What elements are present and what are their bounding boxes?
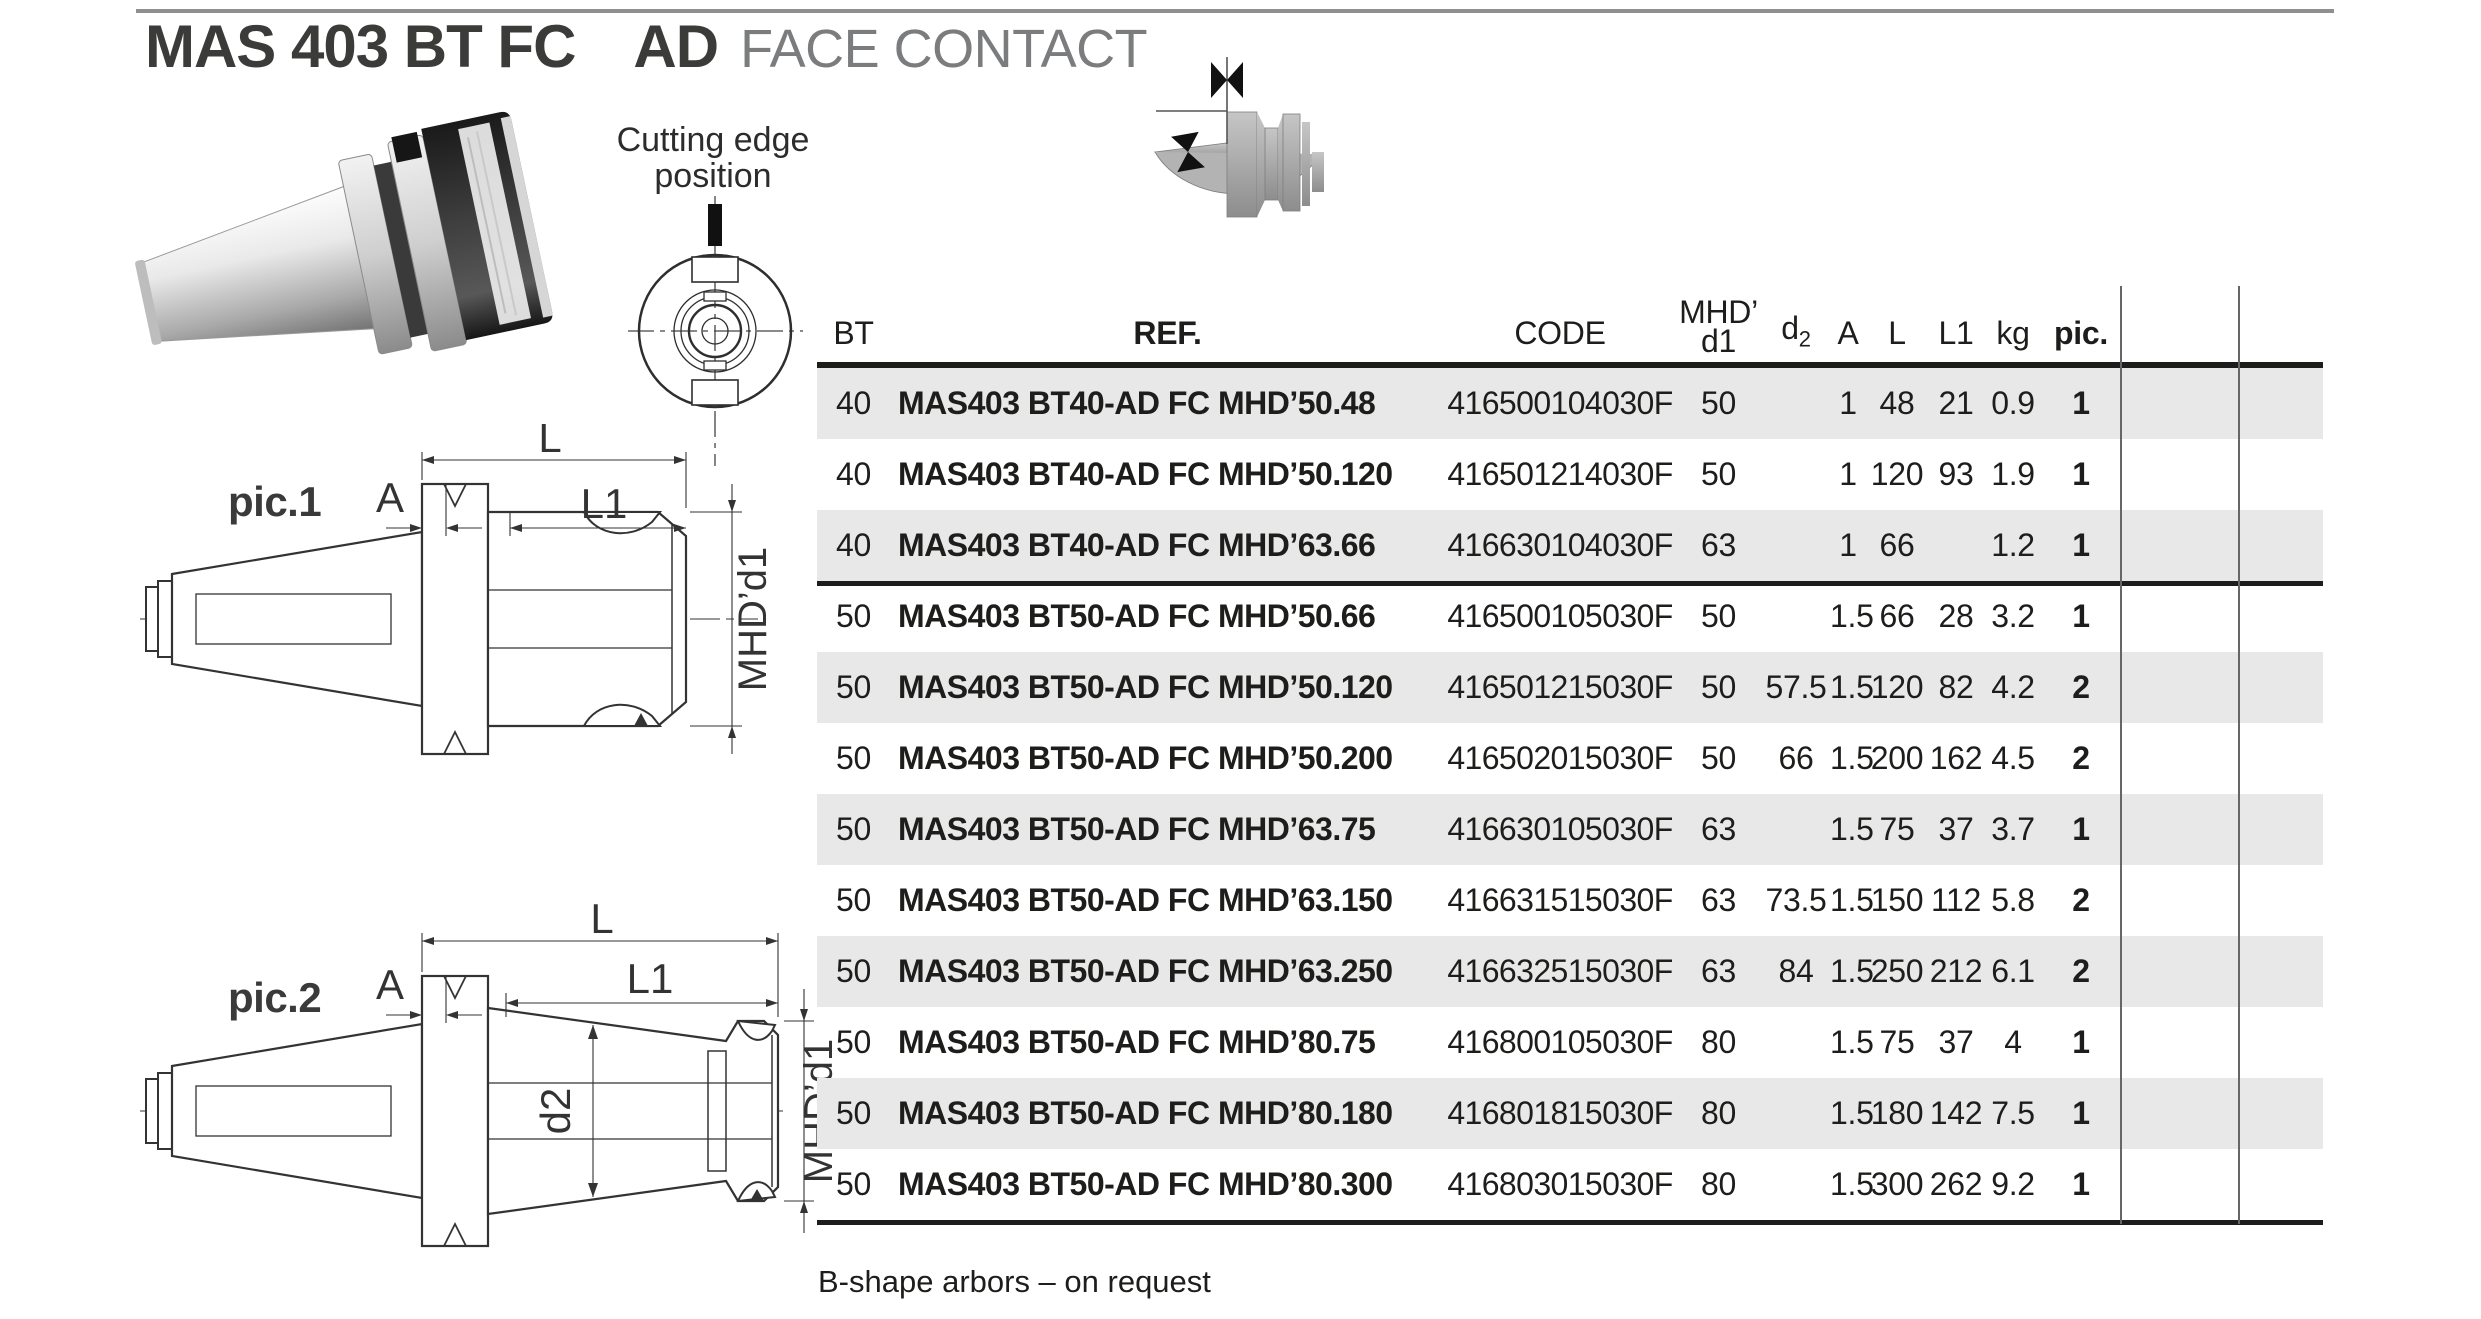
cell-l1: 93 (1928, 456, 1984, 493)
cell-pic: 1 (2042, 1024, 2120, 1061)
cell-a: 1.5 (1830, 1166, 1866, 1203)
cell-pic: 1 (2042, 1095, 2120, 1132)
dim-label-mhd: MHD’d1 (731, 547, 775, 691)
cell-pic: 1 (2042, 1166, 2120, 1203)
cell-d2: 57.5 (1762, 669, 1830, 706)
cell-a: 1.5 (1830, 598, 1866, 635)
cell-mhd-d1: 63 (1675, 953, 1762, 990)
col-header-ref: REF. (890, 315, 1445, 362)
cell-mhd-d1: 80 (1675, 1095, 1762, 1132)
cell-mhd-d1: 80 (1675, 1024, 1762, 1061)
cell-a: 1.5 (1830, 882, 1866, 919)
table-row: 50 MAS403 BT50-AD FC MHD’50.120 41650121… (817, 652, 2323, 723)
cell-d2: 84 (1762, 953, 1830, 990)
cell-kg: 3.7 (1984, 811, 2042, 848)
tool-holder-photo (133, 96, 553, 418)
cell-l: 250 (1866, 953, 1928, 990)
cell-l1: 37 (1928, 811, 1984, 848)
cell-kg: 4.5 (1984, 740, 2042, 777)
table-row: 50 MAS403 BT50-AD FC MHD’80.75 416800105… (817, 1007, 2323, 1078)
cell-code: 416500104030F (1445, 385, 1675, 422)
cell-code: 416803015030F (1445, 1166, 1675, 1203)
dim-label-l1: L1 (581, 480, 628, 527)
cell-l: 66 (1866, 598, 1928, 635)
cell-d2: 73.5 (1762, 882, 1830, 919)
cell-bt: 40 (817, 527, 890, 564)
cell-a: 1.5 (1830, 1095, 1866, 1132)
cell-l: 75 (1866, 1024, 1928, 1061)
col-header-d2: d2 (1762, 310, 1830, 362)
cell-code: 416632515030F (1445, 953, 1675, 990)
col-header-a: A (1830, 315, 1866, 362)
table-row: 50 MAS403 BT50-AD FC MHD’50.66 416500105… (817, 581, 2323, 652)
cell-bt: 50 (817, 811, 890, 848)
dim-label-a: A (376, 961, 404, 1008)
cutting-edge-label: Cutting edge position (598, 122, 828, 194)
cell-kg: 4.2 (1984, 669, 2042, 706)
cell-ref: MAS403 BT50-AD FC MHD’63.150 (890, 882, 1445, 919)
dim-label-a: A (376, 474, 404, 521)
cell-ref: MAS403 BT40-AD FC MHD’50.120 (890, 456, 1445, 493)
table-body: 40 MAS403 BT40-AD FC MHD’50.48 416500104… (817, 368, 2323, 1220)
cell-bt: 50 (817, 669, 890, 706)
col-header-mhd-d1: MHD’ d1 (1675, 298, 1762, 362)
cell-bt: 40 (817, 456, 890, 493)
title-standard: MAS 403 BT FC (145, 13, 575, 80)
table-header: BT REF. CODE MHD’ d1 d2 A L L1 kg pic. (817, 276, 2323, 362)
cell-kg: 9.2 (1984, 1166, 2042, 1203)
table-row: 50 MAS403 BT50-AD FC MHD’63.75 416630105… (817, 794, 2323, 865)
col-header-pic: pic. (2042, 315, 2120, 362)
cell-pic: 1 (2042, 385, 2120, 422)
table-row: 50 MAS403 BT50-AD FC MHD’80.180 41680181… (817, 1078, 2323, 1149)
col-header-extra-2 (2238, 352, 2323, 362)
cell-kg: 1.9 (1984, 456, 2042, 493)
table-vertical-rule-1 (2120, 286, 2122, 1224)
cell-l: 180 (1866, 1095, 1928, 1132)
dim-label-d2: d2 (532, 1088, 579, 1135)
cell-code: 416500105030F (1445, 598, 1675, 635)
cell-l1: 28 (1928, 598, 1984, 635)
cell-mhd-d1: 63 (1675, 882, 1762, 919)
cell-pic: 1 (2042, 527, 2120, 564)
cell-ref: MAS403 BT50-AD FC MHD’80.75 (890, 1024, 1445, 1061)
col-header-l1: L1 (1928, 315, 1984, 362)
cell-kg: 0.9 (1984, 385, 2042, 422)
pic2-drawing: L A L1 d2 MHD’d1 (138, 901, 838, 1318)
cell-ref: MAS403 BT40-AD FC MHD’63.66 (890, 527, 1445, 564)
cell-mhd-d1: 63 (1675, 811, 1762, 848)
cell-code: 416631515030F (1445, 882, 1675, 919)
table-row: 50 MAS403 BT50-AD FC MHD’80.300 41680301… (817, 1149, 2323, 1220)
cell-code: 416800105030F (1445, 1024, 1675, 1061)
cell-a: 1 (1830, 527, 1866, 564)
cell-bt: 50 (817, 598, 890, 635)
cell-ref: MAS403 BT40-AD FC MHD’50.48 (890, 385, 1445, 422)
cell-l1: 112 (1928, 882, 1984, 919)
cell-ref: MAS403 BT50-AD FC MHD’80.300 (890, 1166, 1445, 1203)
page-title: MAS 403 BT FCADFACE CONTACT (145, 12, 1147, 81)
cell-l: 120 (1866, 669, 1928, 706)
cell-bt: 50 (817, 953, 890, 990)
cell-code: 416630105030F (1445, 811, 1675, 848)
cell-bt: 50 (817, 1024, 890, 1061)
cell-a: 1.5 (1830, 740, 1866, 777)
catalog-page: MAS 403 BT FCADFACE CONTACT (0, 0, 2481, 1319)
footer-note: B-shape arbors – on request (818, 1264, 1211, 1300)
cell-code: 416801815030F (1445, 1095, 1675, 1132)
table-row: 50 MAS403 BT50-AD FC MHD’50.200 41650201… (817, 723, 2323, 794)
cell-l1: 142 (1928, 1095, 1984, 1132)
cell-mhd-d1: 50 (1675, 740, 1762, 777)
group-separator-line (817, 581, 2323, 586)
col-header-extra-1 (2120, 352, 2238, 362)
cell-a: 1.5 (1830, 953, 1866, 990)
table-bottom-line (817, 1220, 2323, 1225)
pic1-drawing: L A L1 MHD’d1 (138, 424, 803, 839)
table-row: 50 MAS403 BT50-AD FC MHD’63.250 41663251… (817, 936, 2323, 1007)
cell-pic: 1 (2042, 456, 2120, 493)
cell-kg: 1.2 (1984, 527, 2042, 564)
cell-l: 75 (1866, 811, 1928, 848)
cell-code: 416630104030F (1445, 527, 1675, 564)
cell-ref: MAS403 BT50-AD FC MHD’63.75 (890, 811, 1445, 848)
cell-l1: 82 (1928, 669, 1984, 706)
cell-code: 416502015030F (1445, 740, 1675, 777)
cell-bt: 50 (817, 1166, 890, 1203)
cell-l: 150 (1866, 882, 1928, 919)
cell-ref: MAS403 BT50-AD FC MHD’50.66 (890, 598, 1445, 635)
cell-bt: 40 (817, 385, 890, 422)
title-code: AD (633, 13, 718, 80)
cell-pic: 2 (2042, 953, 2120, 990)
dim-label-l: L (538, 424, 561, 461)
cell-ref: MAS403 BT50-AD FC MHD’50.120 (890, 669, 1445, 706)
cell-mhd-d1: 50 (1675, 598, 1762, 635)
contact-bowtie-top (1211, 62, 1227, 98)
cell-kg: 7.5 (1984, 1095, 2042, 1132)
cell-ref: MAS403 BT50-AD FC MHD’63.250 (890, 953, 1445, 990)
cell-mhd-d1: 50 (1675, 456, 1762, 493)
cell-mhd-d1: 50 (1675, 669, 1762, 706)
cell-a: 1.5 (1830, 811, 1866, 848)
col-header-kg: kg (1984, 315, 2042, 362)
col-header-bt: BT (817, 315, 890, 362)
cell-mhd-d1: 63 (1675, 527, 1762, 564)
table-row: 40 MAS403 BT40-AD FC MHD’50.120 41650121… (817, 439, 2323, 510)
cell-mhd-d1: 80 (1675, 1166, 1762, 1203)
cell-kg: 3.2 (1984, 598, 2042, 635)
dim-label-l1: L1 (627, 955, 674, 1002)
cell-l: 200 (1866, 740, 1928, 777)
cell-ref: MAS403 BT50-AD FC MHD’50.200 (890, 740, 1445, 777)
cell-kg: 5.8 (1984, 882, 2042, 919)
cell-l: 300 (1866, 1166, 1928, 1203)
cell-l1: 262 (1928, 1166, 1984, 1203)
cell-kg: 6.1 (1984, 953, 2042, 990)
cell-a: 1 (1830, 456, 1866, 493)
dim-label-l: L (590, 901, 613, 942)
cell-bt: 50 (817, 740, 890, 777)
table-row: 50 MAS403 BT50-AD FC MHD’63.150 41663151… (817, 865, 2323, 936)
col-header-l: L (1866, 315, 1928, 362)
cell-l: 66 (1866, 527, 1928, 564)
cell-kg: 4 (1984, 1024, 2042, 1061)
table-vertical-rule-2 (2238, 286, 2240, 1224)
cell-pic: 2 (2042, 669, 2120, 706)
col-header-code: CODE (1445, 315, 1675, 362)
cell-l1: 37 (1928, 1024, 1984, 1061)
cell-pic: 1 (2042, 811, 2120, 848)
cell-a: 1.5 (1830, 669, 1866, 706)
face-contact-icon (1143, 52, 1348, 232)
cutting-edge-mark (708, 204, 722, 246)
cell-ref: MAS403 BT50-AD FC MHD’80.180 (890, 1095, 1445, 1132)
cell-code: 416501214030F (1445, 456, 1675, 493)
cell-bt: 50 (817, 882, 890, 919)
table-row: 40 MAS403 BT40-AD FC MHD’50.48 416500104… (817, 368, 2323, 439)
title-description: FACE CONTACT (740, 19, 1147, 79)
cell-a: 1 (1830, 385, 1866, 422)
cell-bt: 50 (817, 1095, 890, 1132)
cell-mhd-d1: 50 (1675, 385, 1762, 422)
cell-pic: 2 (2042, 740, 2120, 777)
cell-l1: 162 (1928, 740, 1984, 777)
cell-l1: 212 (1928, 953, 1984, 990)
cell-d2: 66 (1762, 740, 1830, 777)
cell-a: 1.5 (1830, 1024, 1866, 1061)
cell-l1: 21 (1928, 385, 1984, 422)
table-row: 40 MAS403 BT40-AD FC MHD’63.66 416630104… (817, 510, 2323, 581)
cell-code: 416501215030F (1445, 669, 1675, 706)
cell-pic: 2 (2042, 882, 2120, 919)
cell-pic: 1 (2042, 598, 2120, 635)
cell-l: 48 (1866, 385, 1928, 422)
cell-l: 120 (1866, 456, 1928, 493)
